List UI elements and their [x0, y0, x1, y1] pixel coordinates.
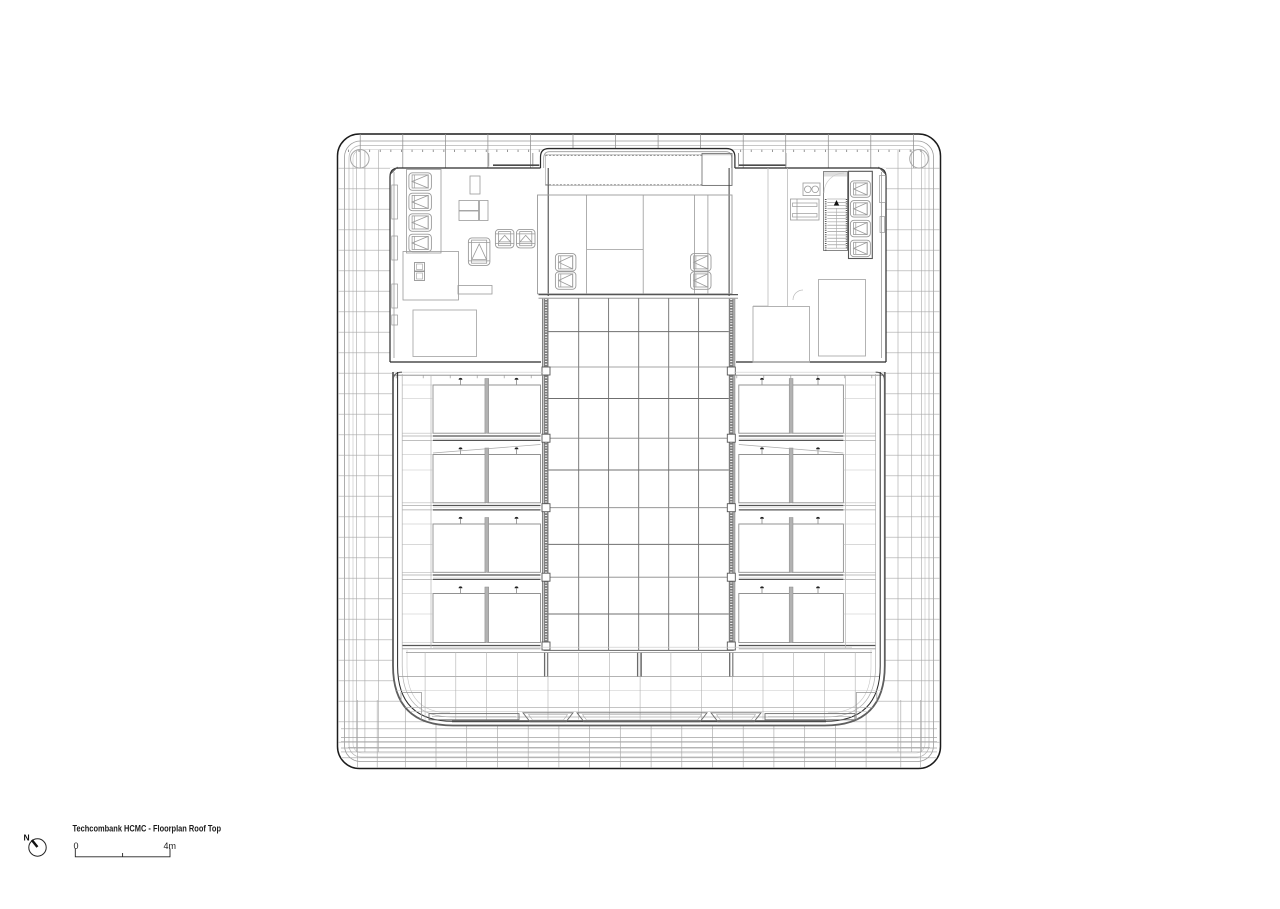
- svg-text:Techcombank HCMC - Floorplan R: Techcombank HCMC - Floorplan Roof Top: [73, 824, 222, 834]
- svg-text:N: N: [24, 833, 30, 843]
- svg-text:0: 0: [74, 841, 79, 851]
